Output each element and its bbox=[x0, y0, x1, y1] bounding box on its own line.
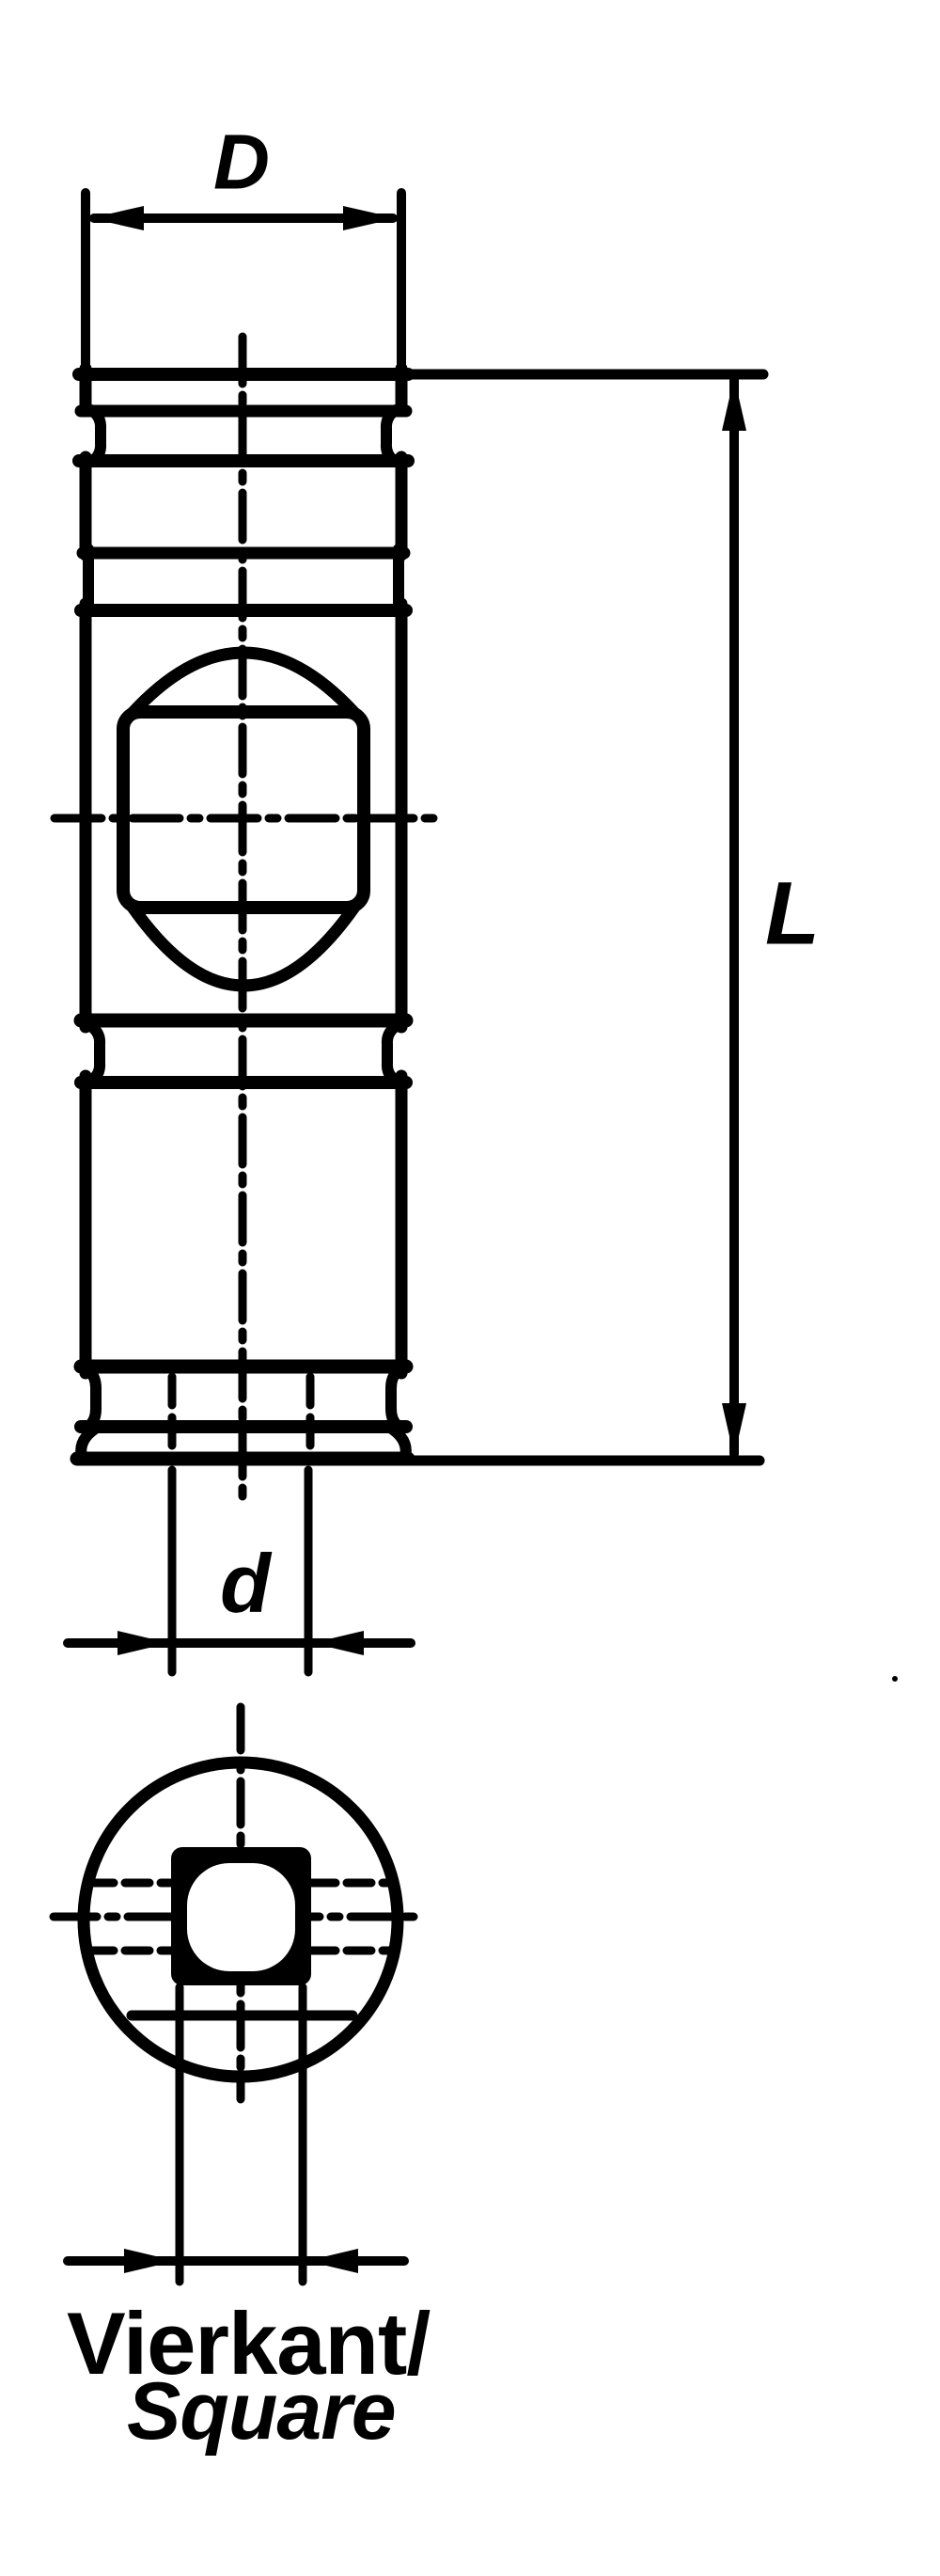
square-size-label: d bbox=[220, 1542, 271, 1625]
caption-english: Square bbox=[127, 2371, 396, 2452]
arrowhead-right bbox=[343, 206, 397, 230]
drawing-page: D L d Vierkant/ Square bbox=[0, 0, 940, 2576]
arrowhead-left bbox=[90, 206, 144, 230]
bottom-view bbox=[54, 1707, 422, 2099]
scan-speck bbox=[892, 1676, 898, 1682]
centerlines bbox=[55, 337, 434, 1505]
arrowhead-left bbox=[312, 1631, 364, 1655]
arrowhead-right bbox=[124, 2249, 176, 2273]
arrowhead-down bbox=[722, 1403, 746, 1457]
front-view bbox=[55, 337, 434, 1505]
drawing-linework bbox=[0, 0, 940, 2576]
length-label: L bbox=[765, 870, 820, 959]
dimension-L bbox=[410, 374, 763, 1461]
arrowhead-left bbox=[306, 2249, 358, 2273]
square-drive-bore bbox=[187, 1863, 295, 1971]
arrowhead-right bbox=[117, 1631, 169, 1655]
diameter-label: D bbox=[213, 123, 270, 201]
arrowhead-up bbox=[722, 377, 746, 431]
